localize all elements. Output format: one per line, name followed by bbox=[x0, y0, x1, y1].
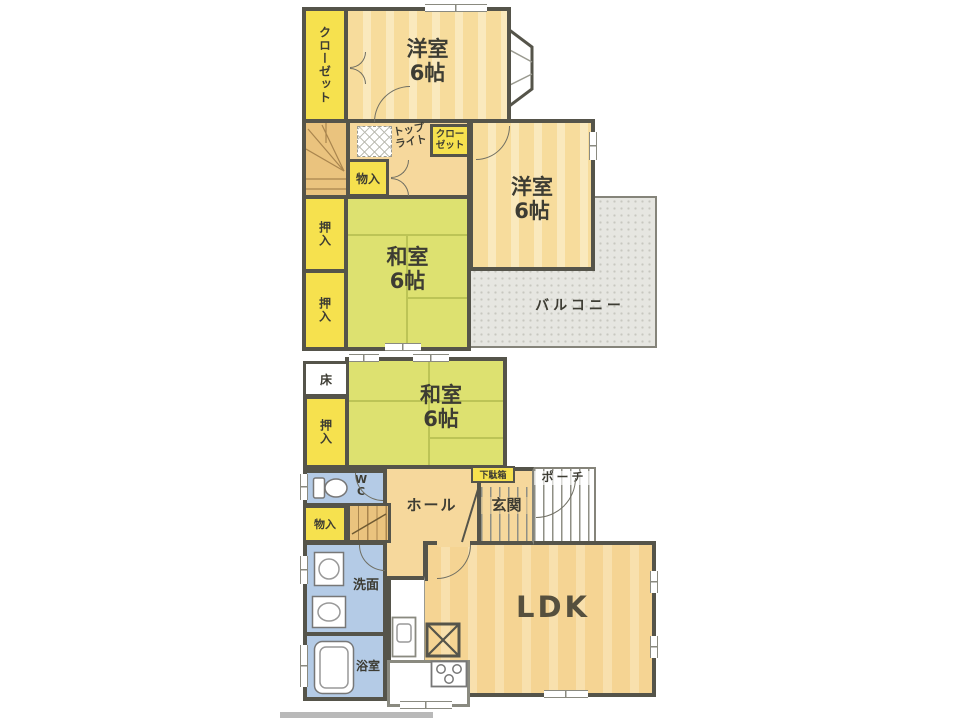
stairs-1f bbox=[347, 503, 391, 543]
floor-plan: バルコニー クローゼット 洋室 6帖 bbox=[0, 0, 960, 720]
bathroom-label: 浴室 bbox=[356, 660, 380, 674]
window-1f-left-washroom bbox=[300, 556, 308, 584]
closet-2f-small-label: クロー ゼット bbox=[436, 130, 465, 152]
storage-1f-label: 物入 bbox=[314, 516, 336, 532]
tokonoma: 床 bbox=[303, 361, 349, 397]
stairs-arrow-icon bbox=[350, 506, 388, 540]
bathroom: 浴室 bbox=[303, 632, 387, 701]
oshiire-1f: 押入 bbox=[303, 395, 349, 469]
toilet-icon bbox=[312, 475, 350, 501]
tatami-line bbox=[348, 234, 467, 236]
tatami-line bbox=[406, 297, 467, 299]
storage-1f: 物入 bbox=[303, 505, 347, 543]
storage-2f: 物入 bbox=[347, 159, 389, 197]
closet-2f-left: クローゼット bbox=[302, 7, 348, 123]
closet-2f-small: クロー ゼット bbox=[430, 124, 470, 157]
washing-machine-icon bbox=[313, 551, 345, 587]
shoe-cabinet: 下駄箱 bbox=[471, 466, 515, 483]
window-2f-bottom bbox=[385, 343, 421, 351]
tokonoma-label: 床 bbox=[320, 371, 332, 388]
entrance-step-line bbox=[456, 484, 482, 544]
japanese-room-6-2f-label: 和室 6帖 bbox=[348, 245, 467, 293]
japanese-room-6-2f: 和室 6帖 bbox=[344, 195, 471, 351]
bathtub-icon bbox=[313, 640, 355, 695]
japanese-room-6-1f: 和室 6帖 bbox=[345, 357, 507, 469]
kitchen-sink-icon bbox=[391, 616, 417, 658]
scan-edge-bar bbox=[280, 712, 433, 718]
window-1f-left-wc bbox=[300, 474, 308, 500]
washroom-label: 洗面 bbox=[353, 579, 379, 594]
ldk-label: LDK bbox=[483, 591, 623, 624]
oshiire-2f-upper: 押入 bbox=[302, 195, 348, 273]
western-room-6-top-label: 洋室 6帖 bbox=[348, 37, 507, 85]
window-1f-top-a bbox=[349, 354, 379, 362]
oshiire-2f-upper-label: 押入 bbox=[317, 221, 334, 247]
oshiire-1f-label: 押入 bbox=[318, 419, 335, 445]
window-2f-top bbox=[425, 4, 487, 12]
window-ldk-bottom bbox=[544, 690, 588, 698]
window-ldk-right-b bbox=[650, 636, 658, 658]
genkan-label: 玄関 bbox=[481, 497, 532, 514]
western-room-6-top: 洋室 6帖 bbox=[344, 7, 511, 123]
stairs-2f bbox=[302, 119, 350, 201]
japanese-room-6-1f-label: 和室 6帖 bbox=[379, 383, 503, 431]
skylight-hatch-icon bbox=[357, 126, 392, 157]
stove-icon bbox=[430, 660, 468, 688]
bay-window-icon bbox=[507, 24, 537, 112]
sink-icon bbox=[311, 595, 347, 629]
stairs-lines-icon bbox=[306, 123, 346, 197]
western-room-6-right-label: 洋室 6帖 bbox=[473, 175, 591, 223]
closet-2f-left-label: クローゼット bbox=[317, 26, 334, 104]
shoe-cabinet-label: 下駄箱 bbox=[479, 468, 506, 481]
oshiire-2f-lower: 押入 bbox=[302, 269, 348, 351]
refrigerator-mark bbox=[425, 622, 461, 658]
storage-2f-label: 物入 bbox=[356, 170, 380, 187]
window-1f-top-b bbox=[413, 354, 449, 362]
window-kitchen-bottom bbox=[400, 701, 452, 709]
window-ldk-right-a bbox=[650, 571, 658, 593]
window-2f-right bbox=[589, 132, 597, 160]
wall-ldk-left bbox=[423, 541, 428, 581]
tatami-line bbox=[428, 437, 503, 439]
oshiire-2f-lower-label: 押入 bbox=[317, 297, 334, 323]
window-1f-left-bath bbox=[300, 645, 308, 687]
balcony-label: バルコニー bbox=[505, 298, 655, 314]
